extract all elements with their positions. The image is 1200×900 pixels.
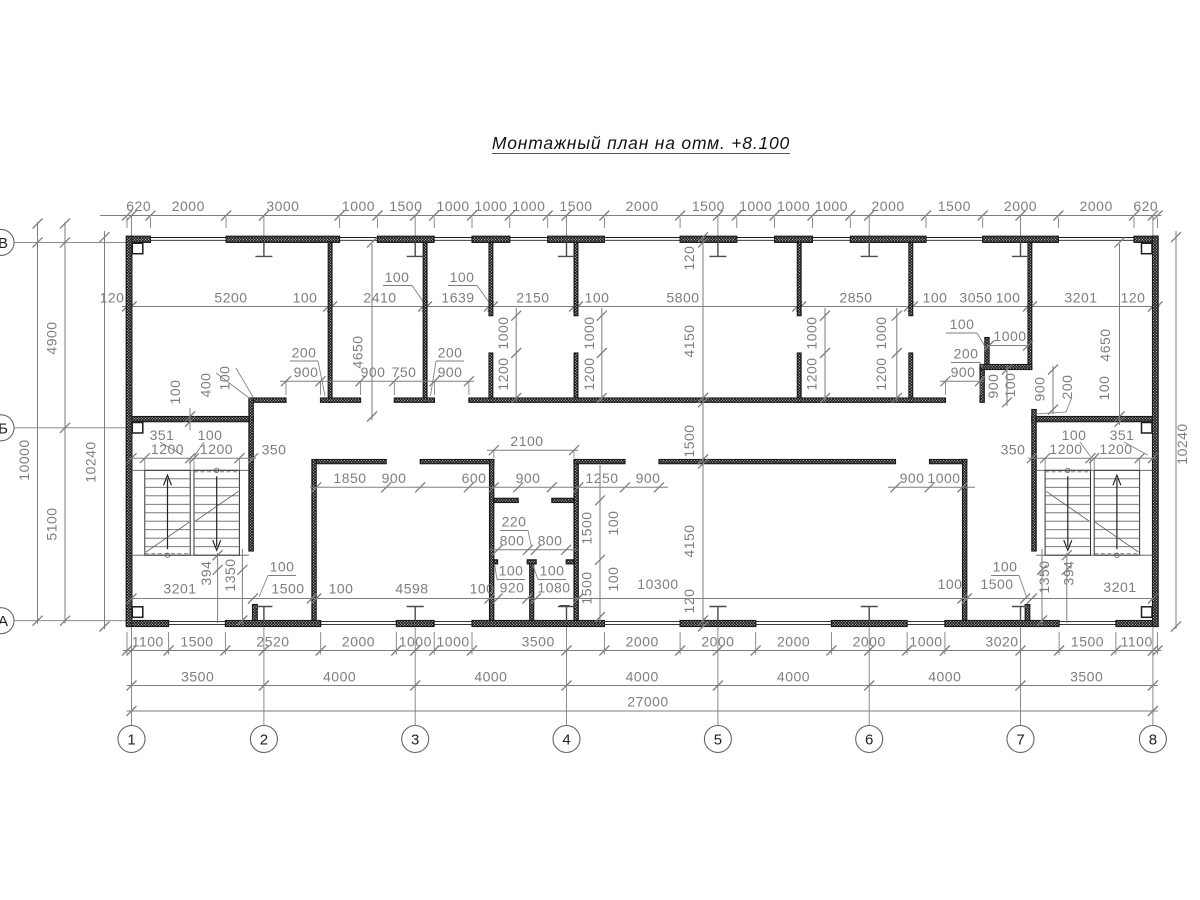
svg-text:1500: 1500 [579, 571, 595, 604]
svg-text:1000: 1000 [474, 198, 507, 214]
svg-text:900: 900 [382, 470, 407, 486]
svg-text:1080: 1080 [537, 580, 570, 596]
svg-text:100: 100 [938, 576, 963, 592]
svg-text:6: 6 [865, 732, 873, 749]
svg-text:900: 900 [294, 364, 319, 380]
svg-text:Б: Б [0, 420, 8, 437]
svg-text:100: 100 [585, 290, 610, 306]
svg-text:1250: 1250 [585, 470, 618, 486]
svg-text:4900: 4900 [44, 321, 60, 354]
svg-text:4000: 4000 [777, 669, 810, 685]
svg-text:100: 100 [329, 581, 354, 597]
svg-text:100: 100 [540, 563, 565, 579]
svg-text:200: 200 [292, 345, 317, 361]
svg-text:920: 920 [500, 580, 525, 596]
svg-text:2520: 2520 [256, 634, 289, 650]
svg-text:900: 900 [516, 470, 541, 486]
svg-text:1500: 1500 [180, 634, 213, 650]
svg-text:1200: 1200 [1099, 441, 1132, 457]
svg-text:4000: 4000 [323, 669, 356, 685]
svg-text:350: 350 [1001, 442, 1026, 458]
svg-text:1500: 1500 [271, 581, 304, 597]
svg-text:4: 4 [562, 732, 570, 749]
svg-text:1350: 1350 [1036, 560, 1052, 593]
svg-text:100: 100 [470, 581, 495, 597]
svg-text:100: 100 [996, 290, 1021, 306]
svg-text:900: 900 [985, 374, 1001, 399]
svg-text:1000: 1000 [927, 470, 960, 486]
svg-text:120: 120 [681, 246, 697, 271]
svg-text:620: 620 [1133, 198, 1158, 214]
svg-text:5100: 5100 [44, 507, 60, 540]
svg-text:Монтажный план на отм. +8.100: Монтажный план на отм. +8.100 [492, 133, 790, 153]
svg-text:600: 600 [462, 470, 487, 486]
svg-text:3500: 3500 [181, 669, 214, 685]
svg-text:1500: 1500 [692, 198, 725, 214]
svg-text:1000: 1000 [739, 198, 772, 214]
svg-text:3000: 3000 [266, 198, 299, 214]
svg-text:1200: 1200 [151, 441, 184, 457]
svg-text:1100: 1100 [1121, 634, 1153, 650]
svg-text:120: 120 [1121, 290, 1146, 306]
svg-text:3500: 3500 [1070, 669, 1103, 685]
svg-text:100: 100 [605, 567, 621, 592]
svg-text:3201: 3201 [1064, 290, 1097, 306]
svg-text:3201: 3201 [163, 581, 196, 597]
svg-text:8: 8 [1149, 732, 1157, 749]
svg-text:900: 900 [438, 364, 463, 380]
svg-text:4000: 4000 [626, 669, 659, 685]
svg-text:100: 100 [385, 269, 410, 285]
svg-text:100: 100 [923, 290, 948, 306]
svg-text:2000: 2000 [172, 198, 205, 214]
svg-text:900: 900 [900, 470, 925, 486]
svg-text:1500: 1500 [938, 198, 971, 214]
svg-text:1200: 1200 [873, 357, 889, 390]
svg-text:2100: 2100 [510, 433, 543, 449]
svg-text:5200: 5200 [214, 290, 247, 306]
svg-text:4598: 4598 [395, 581, 428, 597]
svg-text:1000: 1000 [777, 198, 810, 214]
svg-text:2000: 2000 [342, 634, 375, 650]
svg-text:1500: 1500 [980, 576, 1013, 592]
svg-text:1350: 1350 [222, 558, 238, 591]
svg-text:1200: 1200 [200, 441, 233, 457]
svg-text:100: 100 [950, 316, 975, 332]
svg-text:1000: 1000 [815, 198, 848, 214]
svg-text:2000: 2000 [626, 634, 659, 650]
svg-text:350: 350 [262, 442, 287, 458]
svg-text:4650: 4650 [350, 335, 366, 368]
svg-text:400: 400 [198, 373, 214, 398]
svg-text:1000: 1000 [342, 198, 375, 214]
svg-text:1500: 1500 [681, 424, 697, 457]
svg-text:10000: 10000 [16, 439, 32, 480]
svg-text:220: 220 [502, 514, 527, 530]
svg-text:1000: 1000 [909, 634, 942, 650]
svg-text:3: 3 [411, 732, 419, 749]
svg-text:1000: 1000 [495, 316, 511, 349]
svg-text:В: В [0, 235, 8, 252]
svg-text:3201: 3201 [1103, 579, 1136, 595]
svg-text:5: 5 [714, 732, 722, 749]
svg-text:100: 100 [167, 380, 183, 405]
svg-text:120: 120 [100, 290, 125, 306]
svg-text:4650: 4650 [1097, 328, 1113, 361]
svg-text:1500: 1500 [1071, 634, 1104, 650]
svg-text:3020: 3020 [985, 634, 1018, 650]
svg-text:2850: 2850 [839, 290, 872, 306]
svg-text:1000: 1000 [873, 316, 889, 349]
svg-text:394: 394 [1061, 561, 1077, 586]
svg-text:100: 100 [270, 559, 295, 575]
svg-text:1000: 1000 [437, 634, 470, 650]
svg-text:4150: 4150 [681, 524, 697, 557]
svg-text:100: 100 [450, 269, 475, 285]
svg-text:1000: 1000 [804, 316, 820, 349]
svg-text:100: 100 [993, 559, 1018, 575]
svg-text:А: А [0, 613, 8, 630]
svg-text:10240: 10240 [83, 441, 99, 482]
svg-text:200: 200 [438, 345, 463, 361]
svg-text:2150: 2150 [516, 290, 549, 306]
svg-text:1850: 1850 [333, 470, 366, 486]
svg-text:1639: 1639 [441, 290, 474, 306]
svg-text:1200: 1200 [495, 357, 511, 390]
svg-text:120: 120 [681, 589, 697, 614]
svg-text:4150: 4150 [681, 324, 697, 357]
svg-text:800: 800 [500, 533, 525, 549]
svg-text:10300: 10300 [637, 576, 678, 592]
svg-text:100: 100 [217, 366, 233, 391]
svg-text:27000: 27000 [627, 694, 668, 710]
svg-text:1200: 1200 [581, 357, 597, 390]
svg-text:1500: 1500 [389, 198, 422, 214]
svg-text:900: 900 [1032, 377, 1048, 402]
svg-text:1: 1 [127, 732, 135, 749]
svg-text:3050: 3050 [959, 290, 992, 306]
svg-text:200: 200 [1059, 375, 1075, 400]
svg-text:2000: 2000 [777, 634, 810, 650]
svg-text:1000: 1000 [581, 316, 597, 349]
svg-text:1200: 1200 [1049, 441, 1082, 457]
svg-text:1500: 1500 [579, 511, 595, 544]
svg-text:100: 100 [499, 563, 524, 579]
svg-text:2000: 2000 [1080, 198, 1113, 214]
svg-text:394: 394 [198, 561, 214, 586]
svg-text:10240: 10240 [1174, 423, 1190, 464]
svg-text:1000: 1000 [993, 328, 1026, 344]
svg-text:1000: 1000 [512, 198, 545, 214]
svg-text:4000: 4000 [928, 669, 961, 685]
svg-text:2000: 2000 [1004, 198, 1037, 214]
svg-text:5800: 5800 [666, 290, 699, 306]
svg-text:620: 620 [126, 198, 151, 214]
svg-text:2000: 2000 [626, 198, 659, 214]
svg-text:1200: 1200 [804, 357, 820, 390]
svg-text:100: 100 [605, 511, 621, 536]
svg-text:3500: 3500 [522, 634, 555, 650]
svg-text:100: 100 [293, 290, 318, 306]
svg-text:900: 900 [951, 364, 976, 380]
svg-text:750: 750 [392, 364, 417, 380]
svg-text:2000: 2000 [872, 198, 905, 214]
svg-text:2: 2 [260, 732, 268, 749]
svg-text:7: 7 [1016, 732, 1024, 749]
svg-text:800: 800 [538, 533, 563, 549]
svg-text:200: 200 [954, 346, 979, 362]
svg-text:4000: 4000 [474, 669, 507, 685]
svg-text:100: 100 [1096, 376, 1112, 401]
svg-text:1100: 1100 [132, 634, 164, 650]
svg-text:2410: 2410 [363, 290, 396, 306]
svg-text:900: 900 [636, 470, 661, 486]
svg-text:1500: 1500 [559, 198, 592, 214]
svg-text:100: 100 [1002, 373, 1018, 398]
svg-text:1000: 1000 [437, 198, 470, 214]
